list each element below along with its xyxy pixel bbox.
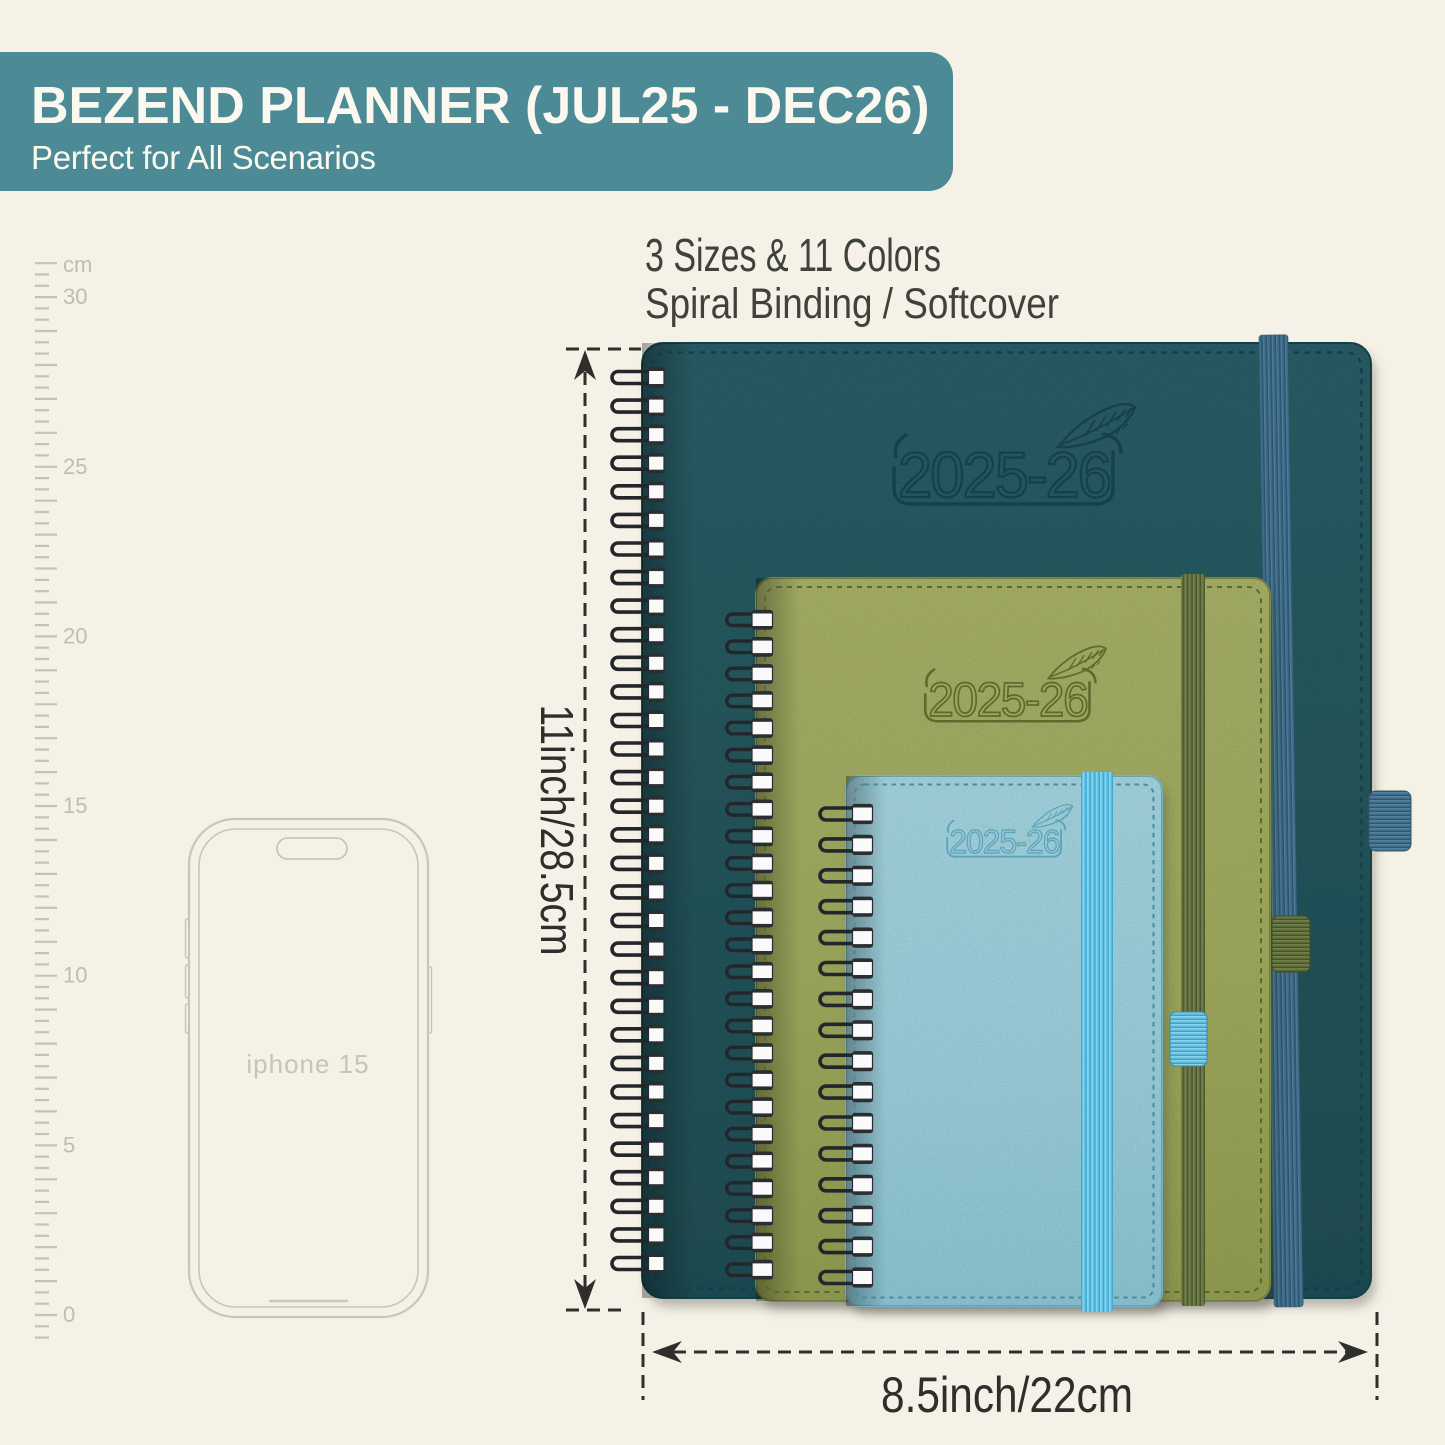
svg-text:5: 5 [63,1132,75,1157]
svg-text:20: 20 [63,623,87,648]
svg-text:11inch/28.5cm: 11inch/28.5cm [531,705,583,956]
svg-text:25: 25 [63,454,87,479]
svg-text:8.5inch/22cm: 8.5inch/22cm [881,1367,1133,1423]
svg-text:Spiral Binding / Softcover: Spiral Binding / Softcover [645,280,1059,328]
svg-text:iphone 15: iphone 15 [246,1049,369,1079]
svg-text:3 Sizes & 11 Colors: 3 Sizes & 11 Colors [645,229,941,281]
svg-text:30: 30 [63,284,87,309]
svg-text:15: 15 [63,793,87,818]
svg-text:10: 10 [63,963,87,988]
svg-text:0: 0 [63,1302,75,1327]
svg-text:cm: cm [63,252,92,277]
